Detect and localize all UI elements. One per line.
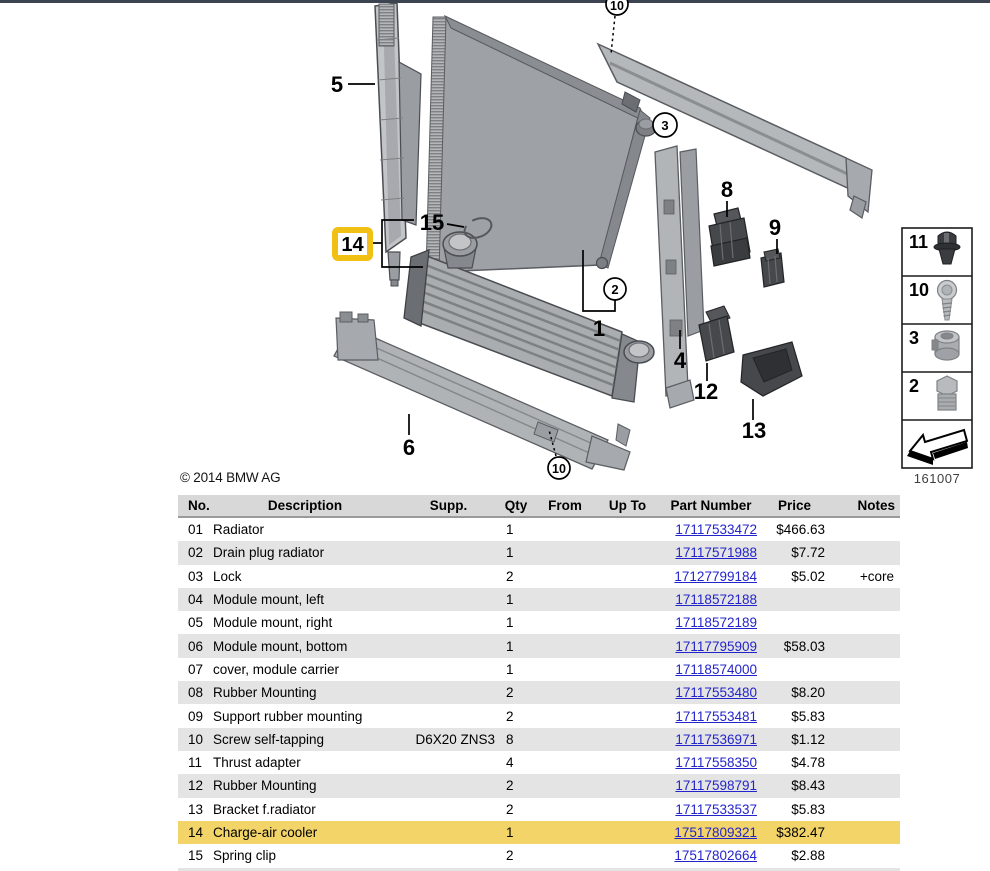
cell-description: cover, module carrier	[210, 658, 400, 681]
callout-3-label: 3	[661, 118, 668, 133]
callout-5-label: 5	[331, 72, 343, 97]
cell-upto	[595, 634, 660, 657]
table-row: 06 Module mount, bottom 1 17117795909 $5…	[178, 634, 900, 657]
cell-qty: 2	[497, 774, 535, 797]
cell-price: $466.63	[762, 517, 827, 541]
cell-description: Bracket f.radiator	[210, 798, 400, 821]
cell-qty: 1	[497, 611, 535, 634]
part-number-link[interactable]: 17117571988	[675, 545, 757, 560]
callout-10-bottom-label: 10	[552, 462, 566, 476]
part-rubber-mount-8	[709, 208, 750, 266]
cell-notes	[827, 634, 900, 657]
legend-item-3-label: 3	[909, 328, 919, 348]
callout-1-label: 1	[593, 316, 605, 341]
cell-description: Lock	[210, 565, 400, 588]
cell-notes	[827, 517, 900, 541]
part-number-link[interactable]: 17127799184	[674, 569, 757, 584]
callout-15-label: 15	[420, 210, 444, 235]
cell-description: Radiator	[210, 517, 400, 541]
legend-item-11-label: 11	[909, 232, 928, 252]
cell-upto	[595, 774, 660, 797]
cell-no: 10	[178, 728, 210, 751]
table-row: 13 Bracket f.radiator 2 17117533537 $5.8…	[178, 798, 900, 821]
cell-upto	[595, 517, 660, 541]
cell-upto	[595, 681, 660, 704]
callout-12-label: 12	[694, 379, 718, 404]
part-number-link[interactable]: 17517809321	[674, 825, 757, 840]
cell-no: 06	[178, 634, 210, 657]
cell-part-number: 17517809321	[660, 821, 762, 844]
cell-from	[535, 821, 595, 844]
cell-notes	[827, 541, 900, 564]
cell-from	[535, 751, 595, 774]
table-row: 14 Charge-air cooler 1 17517809321 $382.…	[178, 821, 900, 844]
callout-6[interactable]: 6	[403, 414, 415, 460]
cell-upto	[595, 611, 660, 634]
cell-part-number: 17117795909	[660, 634, 762, 657]
cell-no: 03	[178, 565, 210, 588]
part-number-link[interactable]: 17118572188	[675, 592, 757, 607]
table-row: 10 Screw self-tapping D6X20 ZNS3 8 17117…	[178, 728, 900, 751]
cell-supp	[400, 658, 497, 681]
column-header-upto: Up To	[595, 495, 660, 517]
cell-price: $382.47	[762, 821, 827, 844]
cell-from	[535, 681, 595, 704]
part-number-link[interactable]: 17517802664	[674, 848, 757, 863]
cell-supp	[400, 821, 497, 844]
table-row: 02 Drain plug radiator 1 17117571988 $7.…	[178, 541, 900, 564]
cell-supp: D6X20 ZNS3	[400, 728, 497, 751]
callout-9[interactable]: 9	[769, 215, 781, 254]
cell-part-number: 17118574000	[660, 658, 762, 681]
table-row: 15 Spring clip 2 17517802664 $2.88	[178, 844, 900, 867]
cell-notes	[827, 844, 900, 867]
cell-notes: +core	[827, 565, 900, 588]
cell-supp	[400, 541, 497, 564]
cell-from	[535, 588, 595, 611]
callout-10-top[interactable]: 10	[606, 0, 628, 54]
table-row: 09 Support rubber mounting 2 17117553481…	[178, 704, 900, 727]
table-row: 04 Module mount, left 1 17118572188	[178, 588, 900, 611]
cell-upto	[595, 588, 660, 611]
callout-14-highlighted[interactable]: 14	[335, 220, 423, 267]
cell-price: $8.20	[762, 681, 827, 704]
cell-part-number: 17127799184	[660, 565, 762, 588]
cell-supp	[400, 517, 497, 541]
cell-upto	[595, 728, 660, 751]
cell-description: Module mount, right	[210, 611, 400, 634]
part-support-mount-9	[761, 249, 784, 287]
cell-no: 01	[178, 517, 210, 541]
cell-qty: 8	[497, 728, 535, 751]
cell-part-number: 17117533537	[660, 798, 762, 821]
column-header-qty: Qty	[497, 495, 535, 517]
legend-item-2-label: 2	[909, 376, 919, 396]
callout-4-label: 4	[674, 348, 687, 373]
column-header-part-number: Part Number	[660, 495, 762, 517]
callout-13-label: 13	[742, 418, 766, 443]
cell-description: Drain plug radiator	[210, 541, 400, 564]
part-number-link[interactable]: 17117536971	[675, 732, 757, 747]
cell-description: Module mount, left	[210, 588, 400, 611]
cell-price: $58.03	[762, 634, 827, 657]
cell-qty: 1	[497, 517, 535, 541]
part-number-link[interactable]: 17118572189	[675, 615, 757, 630]
cell-qty: 1	[497, 634, 535, 657]
cell-supp	[400, 611, 497, 634]
column-header-description: Description	[210, 495, 400, 517]
column-header-notes: Notes	[827, 495, 900, 517]
callout-5[interactable]: 5	[331, 72, 375, 97]
column-header-price: Price	[762, 495, 827, 517]
cell-supp	[400, 751, 497, 774]
cell-upto	[595, 704, 660, 727]
cell-part-number: 17117571988	[660, 541, 762, 564]
cell-supp	[400, 634, 497, 657]
cell-price: $8.43	[762, 774, 827, 797]
callout-3[interactable]: 3	[653, 113, 677, 137]
lock-icon	[932, 331, 959, 360]
cell-supp	[400, 704, 497, 727]
cell-qty: 2	[497, 844, 535, 867]
cell-from	[535, 517, 595, 541]
cell-no: 14	[178, 821, 210, 844]
part-number-link[interactable]: 17117598791	[675, 778, 757, 793]
part-number-link[interactable]: 17117533472	[675, 522, 757, 537]
cell-notes	[827, 821, 900, 844]
next-row-partial	[178, 868, 900, 871]
parts-table-body: 01 Radiator 1 17117533472 $466.63 02 Dra…	[178, 517, 900, 867]
cell-notes	[827, 728, 900, 751]
cell-notes	[827, 658, 900, 681]
cell-qty: 1	[497, 588, 535, 611]
cell-price	[762, 588, 827, 611]
copyright: © 2014 BMW AG	[180, 470, 280, 485]
cell-upto	[595, 798, 660, 821]
table-row: 07 cover, module carrier 1 17118574000	[178, 658, 900, 681]
cell-description: Spring clip	[210, 844, 400, 867]
cell-price	[762, 658, 827, 681]
cell-price: $5.02	[762, 565, 827, 588]
cell-notes	[827, 704, 900, 727]
cell-price	[762, 611, 827, 634]
cell-price: $5.83	[762, 798, 827, 821]
part-number-link[interactable]: 17117533537	[675, 802, 757, 817]
cell-notes	[827, 681, 900, 704]
cell-from	[535, 634, 595, 657]
legend-item-10-label: 10	[909, 280, 929, 300]
cell-description: Support rubber mounting	[210, 704, 400, 727]
table-row: 01 Radiator 1 17117533472 $466.63	[178, 517, 900, 541]
column-header-no: No.	[178, 495, 210, 517]
drain-plug-icon	[937, 376, 957, 410]
column-header-supp: Supp.	[400, 495, 497, 517]
parts-table: No. Description Supp. Qty From Up To Par…	[178, 495, 900, 867]
cell-part-number: 17117553481	[660, 704, 762, 727]
cell-part-number: 17117598791	[660, 774, 762, 797]
cell-part-number: 17118572188	[660, 588, 762, 611]
part-number-link[interactable]: 17117558350	[675, 755, 757, 770]
table-row: 03 Lock 2 17127799184 $5.02 +core	[178, 565, 900, 588]
legend-box: 11 10 3 2	[902, 228, 972, 468]
part-number-link[interactable]: 17117553481	[675, 709, 757, 724]
cell-notes	[827, 798, 900, 821]
callout-9-label: 9	[769, 215, 781, 240]
cell-supp	[400, 588, 497, 611]
cell-from	[535, 798, 595, 821]
cell-from	[535, 704, 595, 727]
cell-part-number: 17117558350	[660, 751, 762, 774]
cell-no: 07	[178, 658, 210, 681]
cell-from	[535, 541, 595, 564]
cell-description: Charge-air cooler	[210, 821, 400, 844]
cell-description: Screw self-tapping	[210, 728, 400, 751]
callout-14-label: 14	[341, 234, 364, 256]
callout-6-label: 6	[403, 435, 415, 460]
callout-1[interactable]: 1	[593, 316, 605, 341]
part-number-link[interactable]: 17117795909	[675, 639, 757, 654]
cell-no: 15	[178, 844, 210, 867]
cell-no: 13	[178, 798, 210, 821]
part-bracket-13	[741, 342, 802, 396]
cell-notes	[827, 588, 900, 611]
cell-part-number: 17117536971	[660, 728, 762, 751]
cell-qty: 4	[497, 751, 535, 774]
cell-no: 12	[178, 774, 210, 797]
table-row: 11 Thrust adapter 4 17117558350 $4.78	[178, 751, 900, 774]
cell-supp	[400, 844, 497, 867]
cell-upto	[595, 751, 660, 774]
cell-part-number: 17117553480	[660, 681, 762, 704]
diagram-image-code: 161007	[914, 471, 960, 486]
cell-notes	[827, 611, 900, 634]
cell-part-number: 17517802664	[660, 844, 762, 867]
column-header-from: From	[535, 495, 595, 517]
cell-notes	[827, 774, 900, 797]
cell-from	[535, 728, 595, 751]
cell-from	[535, 611, 595, 634]
cell-from	[535, 565, 595, 588]
cell-upto	[595, 821, 660, 844]
cell-part-number: 17118572189	[660, 611, 762, 634]
cell-no: 08	[178, 681, 210, 704]
callout-8-label: 8	[721, 177, 733, 202]
cell-supp	[400, 565, 497, 588]
cell-from	[535, 658, 595, 681]
callout-2-label: 2	[611, 282, 618, 297]
cell-qty: 2	[497, 798, 535, 821]
cell-price: $1.12	[762, 728, 827, 751]
cell-no: 02	[178, 541, 210, 564]
cell-notes	[827, 751, 900, 774]
cell-no: 09	[178, 704, 210, 727]
cell-price: $5.83	[762, 704, 827, 727]
cell-upto	[595, 565, 660, 588]
cell-price: $7.72	[762, 541, 827, 564]
cell-upto	[595, 541, 660, 564]
cell-qty: 1	[497, 821, 535, 844]
callout-10-top-label: 10	[610, 0, 624, 13]
cell-description: Rubber Mounting	[210, 774, 400, 797]
table-row: 12 Rubber Mounting 2 17117598791 $8.43	[178, 774, 900, 797]
table-header-row: No. Description Supp. Qty From Up To Par…	[178, 495, 900, 517]
table-row: 05 Module mount, right 1 17118572189	[178, 611, 900, 634]
cell-description: Module mount, bottom	[210, 634, 400, 657]
cell-part-number: 17117533472	[660, 517, 762, 541]
cell-no: 11	[178, 751, 210, 774]
cell-no: 05	[178, 611, 210, 634]
part-number-link[interactable]: 17118574000	[675, 662, 757, 677]
cell-no: 04	[178, 588, 210, 611]
cell-supp	[400, 798, 497, 821]
cell-from	[535, 844, 595, 867]
diagram-area: 5 10 3 8 9 15 14 2 1 4 12	[178, 0, 990, 492]
cell-from	[535, 774, 595, 797]
cell-qty: 1	[497, 541, 535, 564]
cell-description: Thrust adapter	[210, 751, 400, 774]
parts-diagram: 5 10 3 8 9 15 14 2 1 4 12	[178, 0, 990, 492]
callout-12[interactable]: 12	[694, 363, 718, 404]
part-number-link[interactable]: 17117553480	[675, 685, 757, 700]
cell-upto	[595, 658, 660, 681]
part-rubber-mount-12	[699, 306, 734, 361]
cell-description: Rubber Mounting	[210, 681, 400, 704]
table-row: 08 Rubber Mounting 2 17117553480 $8.20	[178, 681, 900, 704]
cell-supp	[400, 681, 497, 704]
cell-price: $2.88	[762, 844, 827, 867]
cell-qty: 2	[497, 565, 535, 588]
callout-13[interactable]: 13	[742, 399, 766, 443]
cell-qty: 2	[497, 681, 535, 704]
cell-qty: 2	[497, 704, 535, 727]
cell-upto	[595, 844, 660, 867]
cell-supp	[400, 774, 497, 797]
cell-price: $4.78	[762, 751, 827, 774]
cell-qty: 1	[497, 658, 535, 681]
